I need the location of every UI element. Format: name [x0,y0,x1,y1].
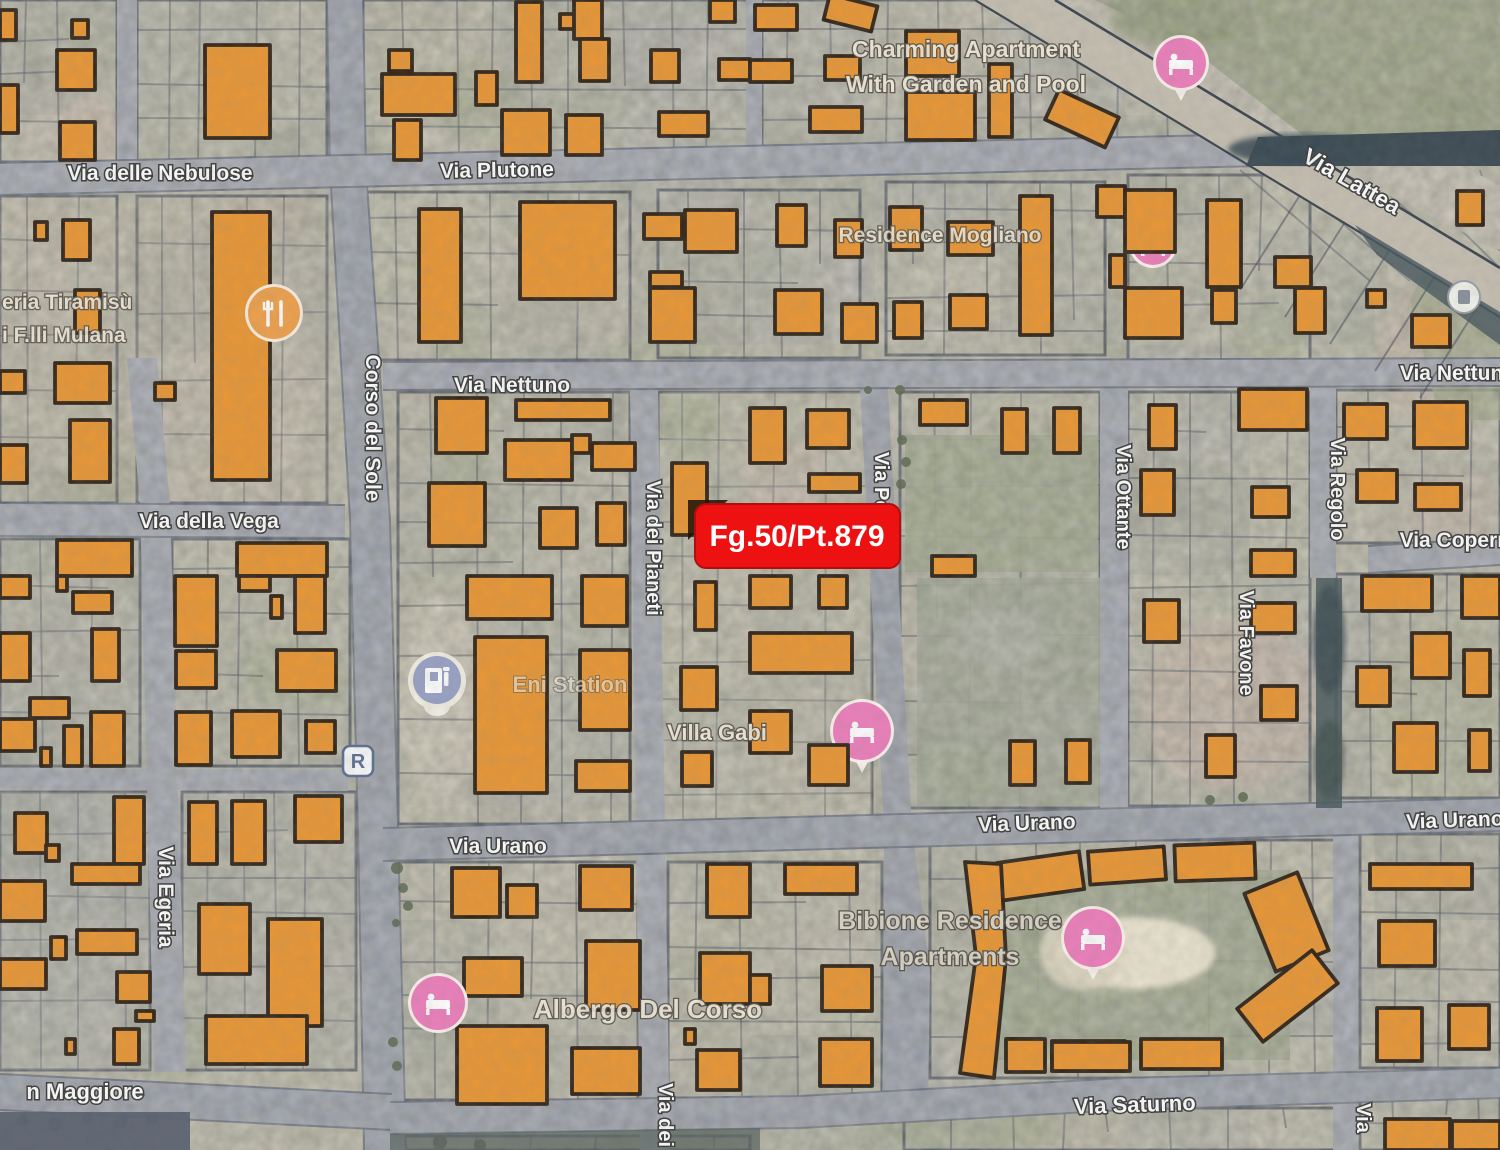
svg-text:Fg.50/Pt.879: Fg.50/Pt.879 [709,520,884,553]
